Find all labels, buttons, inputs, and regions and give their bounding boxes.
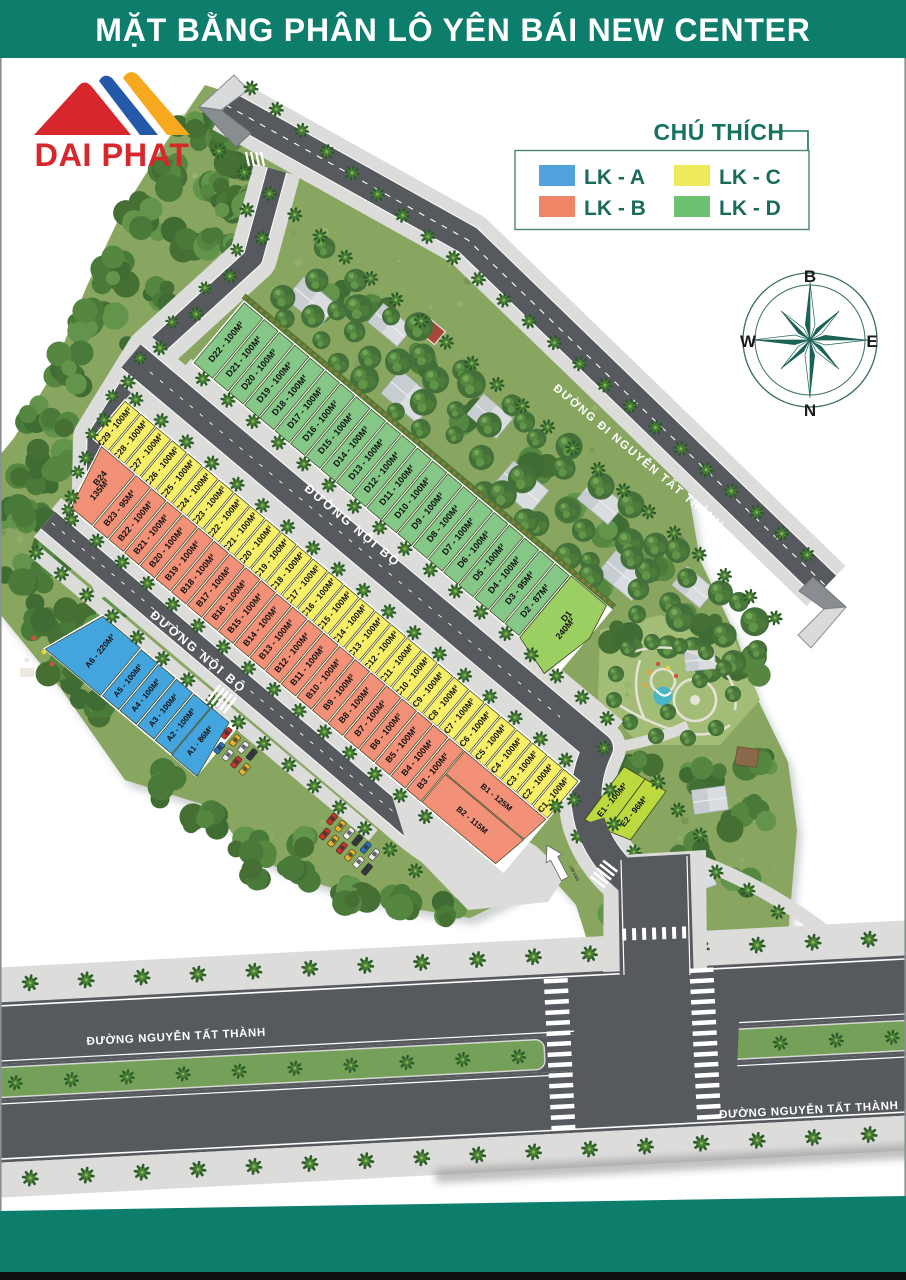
svg-text:DAI PHAT: DAI PHAT <box>34 137 189 173</box>
svg-text:W: W <box>740 332 757 351</box>
svg-text:E: E <box>866 332 877 351</box>
svg-text:N: N <box>804 401 816 420</box>
svg-text:LK - D: LK - D <box>719 197 781 220</box>
svg-text:CHÚ THÍCH: CHÚ THÍCH <box>654 118 785 145</box>
svg-text:LK - C: LK - C <box>719 166 781 189</box>
svg-text:LK - A: LK - A <box>584 166 645 189</box>
svg-text:B: B <box>804 267 816 286</box>
svg-text:LK - B: LK - B <box>584 197 646 220</box>
svg-text:MẶT BẰNG PHÂN LÔ YÊN BÁI NEW C: MẶT BẰNG PHÂN LÔ YÊN BÁI NEW CENTER <box>95 12 810 48</box>
